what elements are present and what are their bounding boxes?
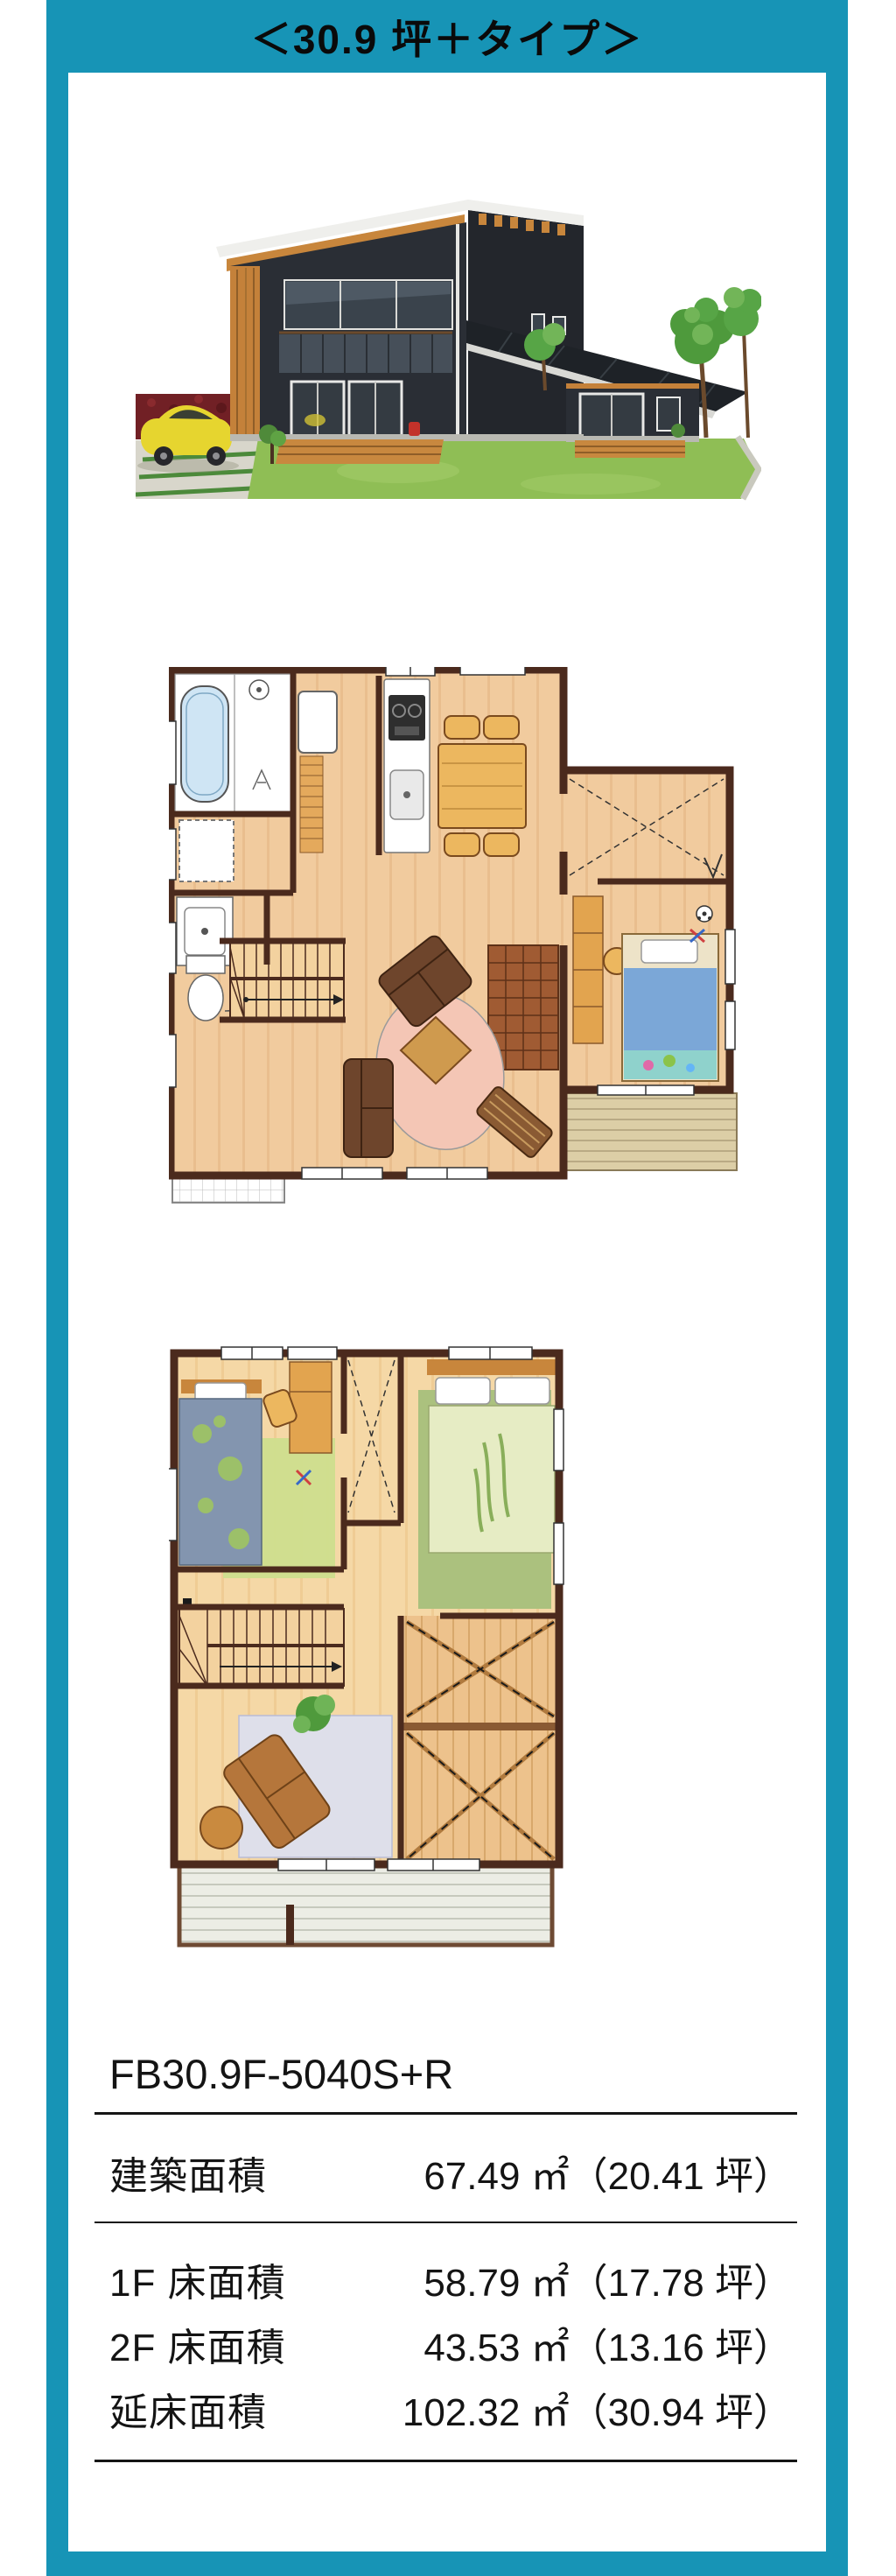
spec-row-total-area: 延床面積 102.32 ㎡（30.94 坪） xyxy=(109,2381,792,2437)
storage-room xyxy=(401,1616,559,1864)
spec-label-total-area: 延床面積 xyxy=(109,2381,267,2437)
spec-value-building-area: 67.49 ㎡（20.41 坪） xyxy=(423,2144,792,2200)
bathroom xyxy=(175,674,291,812)
wood-pillar xyxy=(230,266,260,438)
divider-top xyxy=(94,2112,797,2115)
header-band: ＜30.9 坪＋タイプ＞ xyxy=(46,0,848,73)
spec-value-2f-area: 43.53 ㎡（13.16 坪） xyxy=(423,2316,792,2372)
house-body xyxy=(216,200,748,464)
master-bedroom xyxy=(418,1359,556,1609)
bed-kids xyxy=(179,1379,262,1565)
side-table xyxy=(200,1807,242,1849)
model-number: FB30.9F-5040S+R xyxy=(109,2050,453,2098)
page-title: ＜30.9 坪＋タイプ＞ xyxy=(251,8,643,66)
bed-green xyxy=(429,1406,555,1553)
balcony-railing xyxy=(279,333,452,373)
sofa-two xyxy=(344,1059,393,1157)
spec-label-2f-area: 2F 床面積 xyxy=(109,2316,286,2372)
staircase-1f xyxy=(230,943,344,1018)
fridge xyxy=(298,691,337,753)
house-exterior-rendering xyxy=(136,173,761,502)
divider-middle xyxy=(94,2222,797,2223)
flyer-page: { "header": { "title": "＜30.9 坪＋タイプ＞" },… xyxy=(0,0,896,2576)
spec-row-building-area: 建築面積 67.49 ㎡（20.41 坪） xyxy=(109,2144,792,2200)
2f-window-band xyxy=(284,280,452,329)
floor-plan-1f xyxy=(169,667,738,1208)
bed-blue xyxy=(622,934,718,1081)
spec-value-total-area: 102.32 ㎡（30.94 坪） xyxy=(402,2381,792,2437)
staircase-2f xyxy=(179,1598,344,1686)
desk-2f xyxy=(290,1362,332,1453)
spec-label-1f-area: 1F 床面積 xyxy=(109,2251,286,2307)
balcony xyxy=(179,1864,552,1945)
floor-plan-2f xyxy=(169,1337,567,1950)
divider-bottom xyxy=(94,2460,797,2462)
red-chair xyxy=(409,422,420,436)
spec-label-building-area: 建築面積 xyxy=(109,2144,267,2200)
spec-value-1f-area: 58.79 ㎡（17.78 坪） xyxy=(423,2251,792,2307)
spec-row-1f-area: 1F 床面積 58.79 ㎡（17.78 坪） xyxy=(109,2251,792,2307)
spec-row-2f-area: 2F 床面積 43.53 ㎡（13.16 坪） xyxy=(109,2316,792,2372)
